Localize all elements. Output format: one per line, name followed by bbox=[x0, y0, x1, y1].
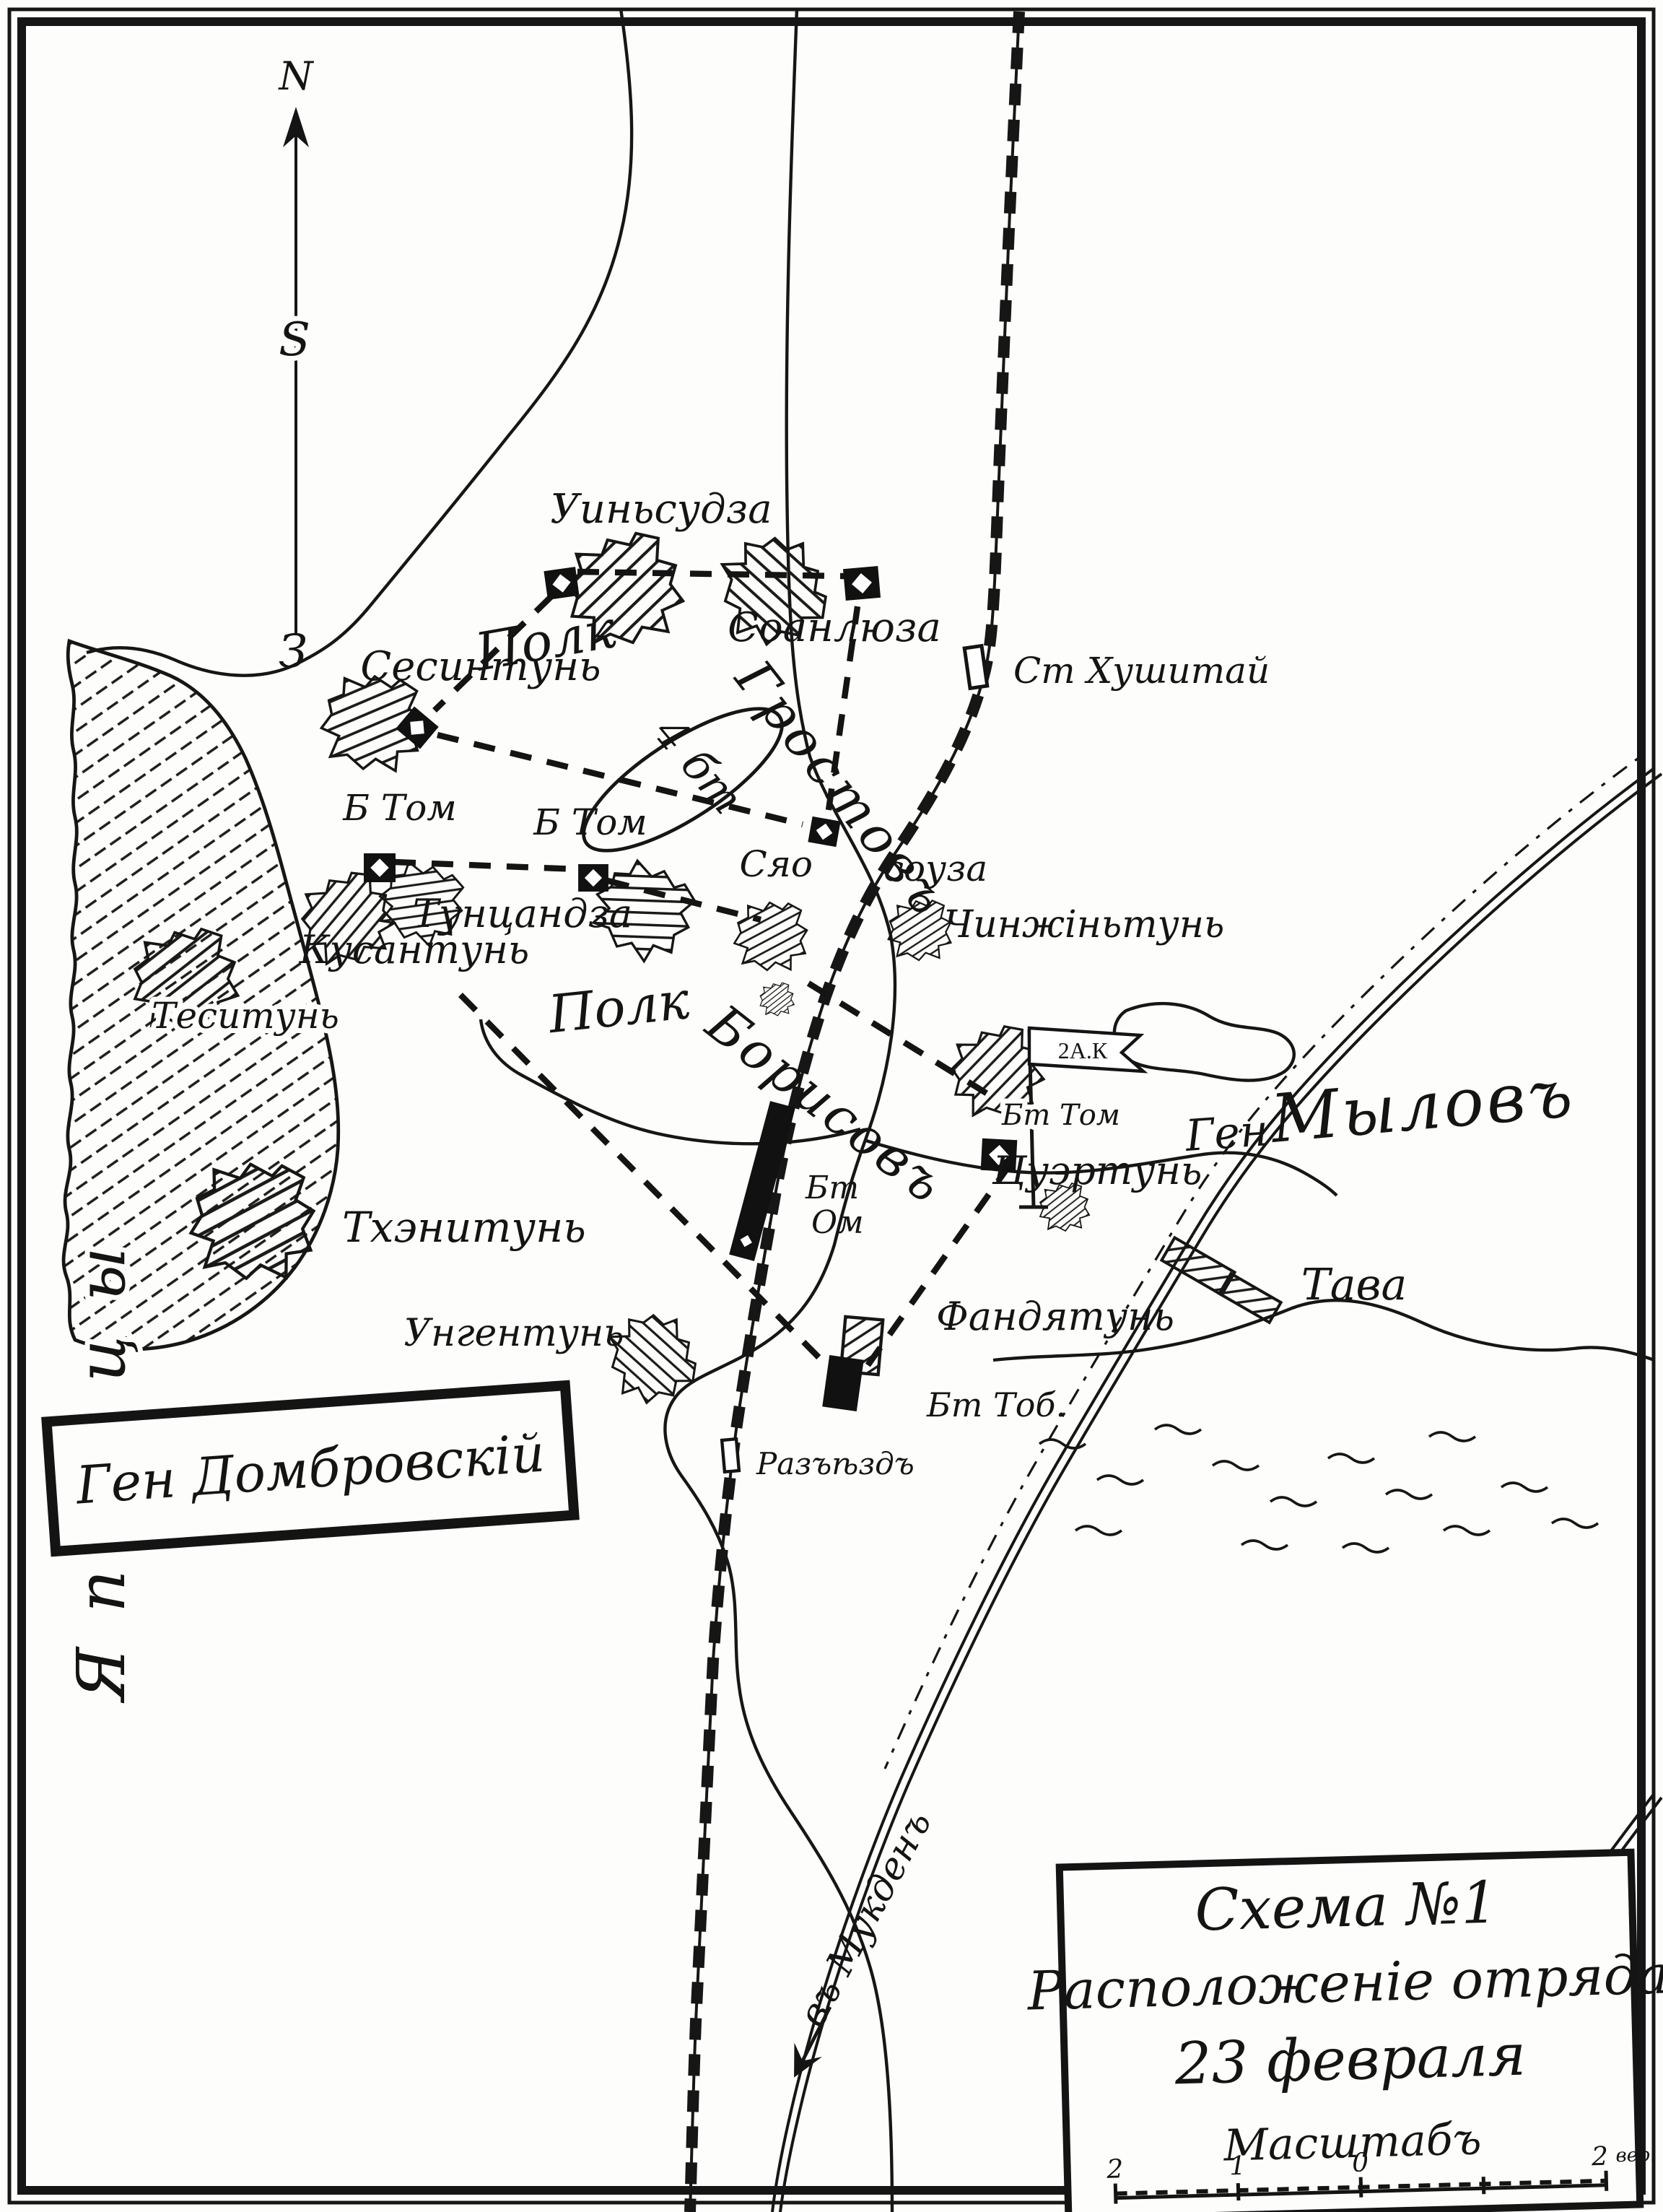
label-tesitun: Теситунь bbox=[152, 995, 339, 1037]
unit-square-bt-tob bbox=[822, 1355, 864, 1411]
label-gen-prefix: Ген bbox=[1183, 1105, 1270, 1162]
scale-tick-1: 1 bbox=[1229, 2151, 1247, 2182]
label-tsuertun: Цуэртунь bbox=[992, 1148, 1202, 1193]
label-razezd: Разъѣздъ bbox=[756, 1446, 915, 1481]
label-tkhenitun: Тхэнитунь bbox=[342, 1203, 586, 1252]
label-b-tom-east: Б Том bbox=[533, 801, 647, 843]
label-b-tom-west: Б Том bbox=[342, 787, 457, 829]
siding-symbol bbox=[722, 1439, 739, 1472]
scale-unit: вер. bbox=[1615, 2144, 1656, 2167]
map-canvas: Японцы Теситунь Тхэнитунь N S З bbox=[0, 0, 1663, 2212]
title-box: Схема №1 Расположеніе отряда 23 февраля … bbox=[1023, 1851, 1663, 2212]
label-syao: Сяо bbox=[740, 843, 813, 885]
label-chinzhintun: Чинжіньтунь bbox=[944, 903, 1224, 946]
label-corps-flag: 2А.К bbox=[1058, 1037, 1108, 1063]
station-symbol-khushitai bbox=[964, 646, 987, 689]
unit-square-soanlyuza bbox=[843, 566, 881, 601]
scale-tick-3: 2 bbox=[1591, 2142, 1609, 2172]
scale-tick-2: 0 bbox=[1352, 2148, 1369, 2178]
label-ungentun: Унгентунь bbox=[403, 1312, 624, 1355]
scale-tick-0: 2 bbox=[1106, 2154, 1124, 2185]
label-bt-om-line1: Бт bbox=[805, 1170, 859, 1206]
label-uinsudza: Уиньсудза bbox=[550, 486, 772, 533]
label-soanlyuza: Соанлюза bbox=[728, 604, 941, 651]
label-fandyatun: Фандятунь bbox=[936, 1294, 1174, 1339]
label-st-khushitai: Ст Хушитай bbox=[1013, 650, 1270, 692]
label-bt-tob: Бт Тоб. bbox=[926, 1385, 1066, 1424]
label-bt-tom: Бт Том bbox=[1001, 1099, 1120, 1132]
compass-middle-label: S bbox=[279, 313, 310, 367]
label-bt-om-line2: Ом bbox=[811, 1204, 864, 1241]
unit-square-b-tom-east bbox=[578, 864, 608, 892]
title-line3: 23 февраля bbox=[1173, 2021, 1527, 2098]
compass-north-label: N bbox=[277, 53, 314, 99]
label-tava: Тава bbox=[1301, 1260, 1407, 1310]
title-line1: Схема №1 bbox=[1194, 1869, 1498, 1944]
unit-square-uinsudza bbox=[544, 567, 579, 600]
label-kusantun: Кусантунь bbox=[299, 927, 530, 972]
map-page: Японцы Теситунь Тхэнитунь N S З bbox=[0, 0, 1663, 2212]
unit-square-b-tom-west bbox=[364, 853, 396, 882]
